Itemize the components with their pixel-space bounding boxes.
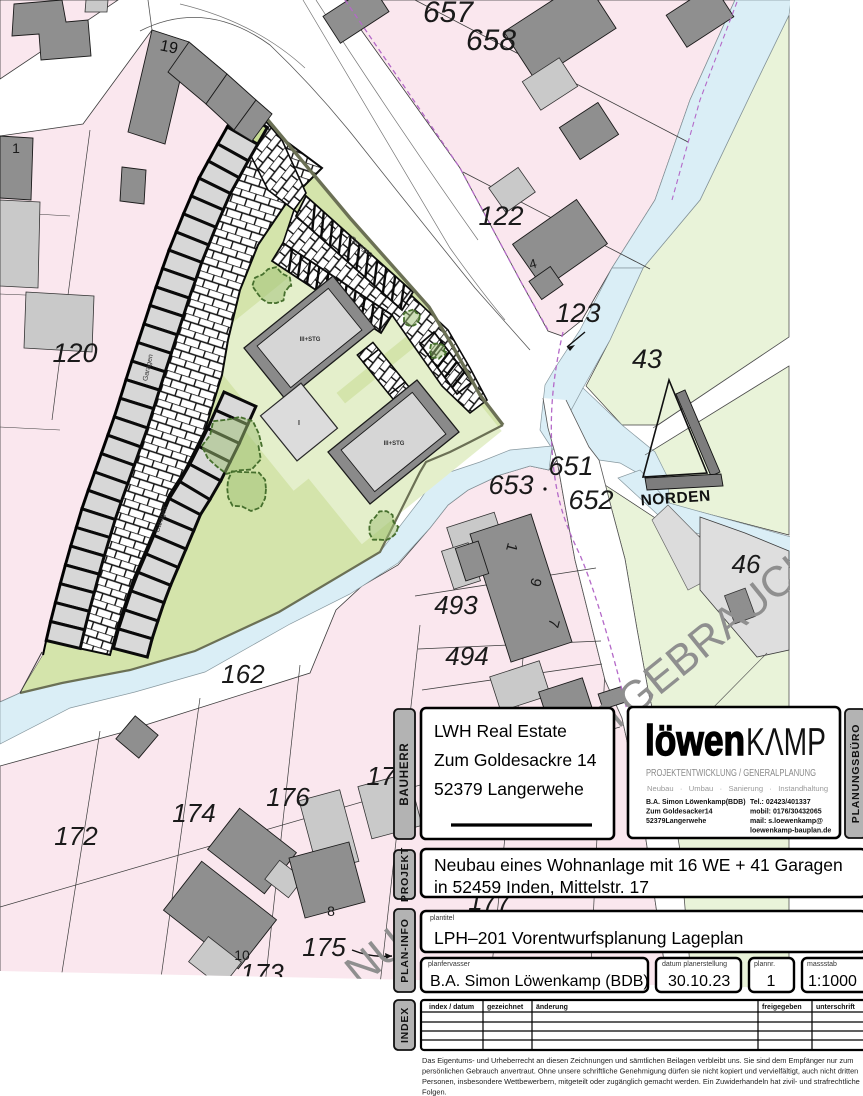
svg-text:10: 10 [234,947,250,963]
svg-text:52379 Langerwehe: 52379 Langerwehe [434,779,584,799]
svg-text:B.A. Simon Löwenkamp (BDB): B.A. Simon Löwenkamp (BDB) [430,973,649,990]
svg-text:loewenkamp-bauplan.de: loewenkamp-bauplan.de [750,828,831,835]
svg-text:120: 120 [52,338,97,368]
svg-text:I: I [298,420,300,427]
svg-text:freigegeben: freigegeben [762,1004,802,1011]
svg-text:PROJEKTENTWICKLUNG / GENERALPL: PROJEKTENTWICKLUNG / GENERALPLANUNG [646,768,816,779]
svg-text:änderung: änderung [536,1004,568,1011]
svg-text:Zum Goldesackre 14: Zum Goldesackre 14 [434,750,597,770]
svg-text:B.A. Simon Löwenkamp(BDB): B.A. Simon Löwenkamp(BDB) [646,799,746,806]
svg-text:in 52459 Inden, Mittelstr. 17: in 52459 Inden, Mittelstr. 17 [434,877,649,897]
svg-text:Tel.: 02423/401337: Tel.: 02423/401337 [750,799,811,806]
svg-text:1:1000: 1:1000 [808,973,857,990]
svg-text:LWH Real Estate: LWH Real Estate [434,721,567,741]
svg-text:unterschrift: unterschrift [816,1004,856,1011]
svg-text:PLAN-INFO: PLAN-INFO [399,918,411,982]
svg-text:658: 658 [466,24,516,57]
svg-text:plannr.: plannr. [754,961,775,968]
svg-text:172: 172 [54,821,98,851]
svg-text:Zum Goldesacker14: Zum Goldesacker14 [646,809,713,816]
svg-text:Das Eigentums- und Urheberrech: Das Eigentums- und Urheberrecht an diese… [422,1056,853,1065]
svg-text:BAUHERR: BAUHERR [399,742,411,805]
svg-text:122: 122 [478,201,523,231]
svg-text:175: 175 [302,932,346,962]
svg-text:19: 19 [158,37,179,57]
svg-text:III+STG: III+STG [384,441,405,447]
svg-text:massstab: massstab [807,961,837,968]
svg-text:INDEX: INDEX [399,1007,411,1043]
svg-text:löwen: löwen [645,717,745,765]
svg-text:162: 162 [221,659,265,689]
svg-text:Neubau · Umbau · Sanie: Neubau · Umbau · Sanierung · Instandhalt… [647,784,828,793]
svg-text:174: 174 [172,798,215,828]
svg-text:46: 46 [732,549,761,579]
svg-text:653: 653 [488,470,533,500]
svg-text:52379Langerwehe: 52379Langerwehe [646,818,706,825]
svg-text:8: 8 [327,903,335,919]
svg-text:176: 176 [266,782,310,812]
svg-text:30.10.23: 30.10.23 [668,973,730,990]
svg-text:651: 651 [548,451,593,481]
svg-text:LPH–201 Vorentwurfsplanung Lag: LPH–201 Vorentwurfsplanung Lageplan [434,928,743,948]
svg-text:mail: s.loewenkamp@: mail: s.loewenkamp@ [750,818,823,825]
svg-text:plantitel: plantitel [430,915,455,922]
svg-text:III+STG: III+STG [300,337,321,343]
svg-text:1: 1 [767,973,776,990]
svg-text:planfervasser: planfervasser [428,961,471,968]
svg-text:index / datum: index / datum [429,1004,474,1011]
svg-text:datum planerstellung: datum planerstellung [662,961,727,968]
svg-text:PROJEKT: PROJEKT [399,847,411,902]
svg-text:1: 1 [12,140,20,156]
svg-text:494: 494 [445,641,488,671]
svg-text:mobil: 0176/30432065: mobil: 0176/30432065 [750,809,822,816]
svg-text:gezeichnet: gezeichnet [487,1004,524,1011]
svg-text:17: 17 [367,761,397,791]
svg-text:KΛMP: KΛMP [746,721,826,764]
svg-text:Neubau eines Wohnanlage mit 16: Neubau eines Wohnanlage mit 16 WE + 41 G… [434,855,843,875]
svg-text:493: 493 [434,590,478,620]
svg-text:Personen, insbesondere Wettbew: Personen, insbesondere Wettbewerbern, mi… [422,1077,860,1086]
svg-text:123: 123 [555,298,600,328]
svg-text:652: 652 [568,485,613,515]
svg-text:Folgen.: Folgen. [422,1088,447,1096]
svg-text:PLANUNGSBÜRO: PLANUNGSBÜRO [849,724,862,823]
svg-text:persönlichen Gebrauch anvertra: persönlichen Gebrauch anvertraut. Ohne u… [422,1067,858,1076]
svg-text:43: 43 [632,344,662,374]
